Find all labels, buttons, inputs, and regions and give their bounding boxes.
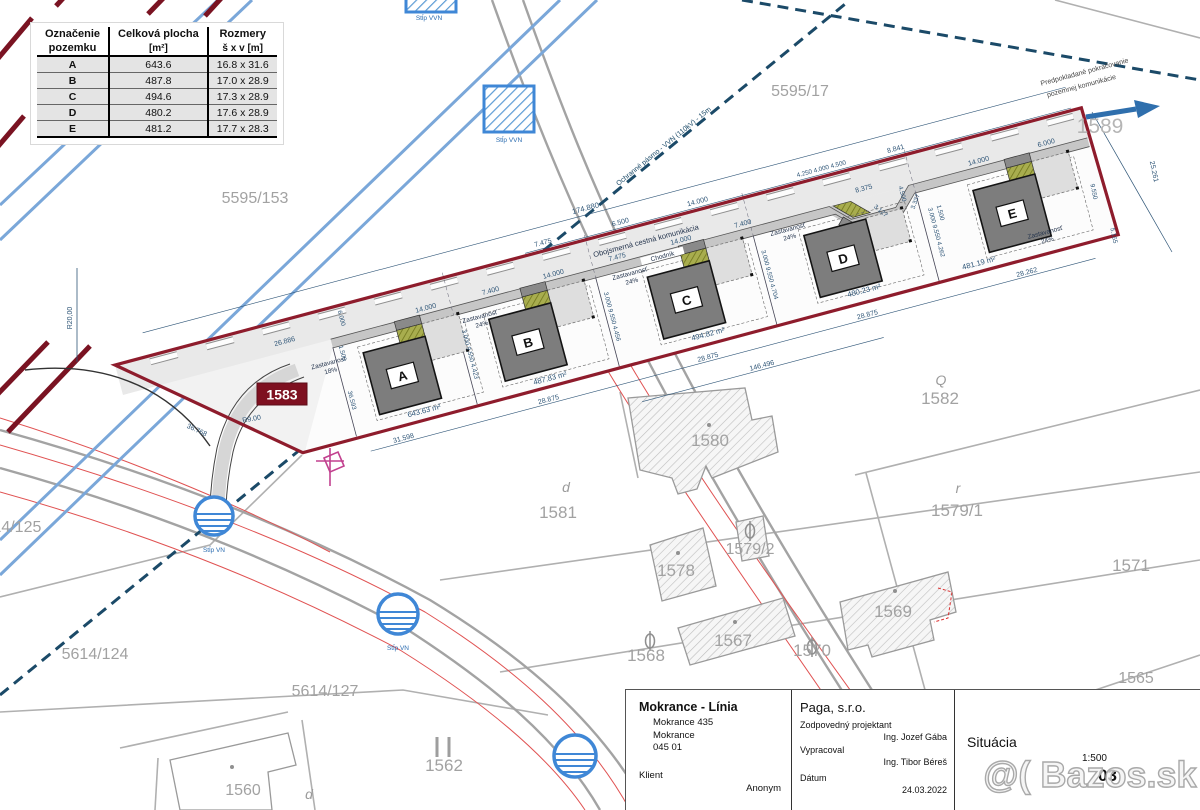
svg-text:d: d (305, 786, 314, 802)
row-d-id: D (37, 105, 109, 121)
table-header-size-unit: š x v [m] (208, 41, 277, 56)
pole-vn-icon (554, 735, 596, 777)
svg-text:d: d (562, 479, 571, 495)
pole-vn-label: Stĺp VN (387, 643, 409, 652)
svg-text:28.875: 28.875 (697, 352, 720, 364)
project-address-2: Mokrance (653, 730, 695, 741)
svg-text:5595/153: 5595/153 (222, 190, 289, 207)
row-d-area: 480.2 (109, 105, 208, 121)
parcel-1583-badge: 1583 (257, 383, 307, 405)
svg-text:Q: Q (936, 372, 947, 388)
watermark-text: @( Bazos.sk (983, 754, 1197, 795)
svg-text:8.841: 8.841 (886, 144, 905, 155)
table-row: B 487.8 17.0 x 28.9 (37, 73, 277, 89)
pole-vn-label: Stĺp VN (203, 545, 225, 554)
client-value: Anonym (746, 783, 781, 794)
svg-text:5614/127: 5614/127 (292, 683, 359, 700)
table-header-area: Celková plocha (109, 27, 208, 41)
row-b-area: 487.8 (109, 73, 208, 89)
project-zip: 045 01 (653, 742, 682, 753)
project-address-1: Mokrance 435 (653, 717, 713, 728)
svg-text:1579/1: 1579/1 (931, 501, 983, 520)
svg-text:5614/125: 5614/125 (0, 519, 41, 536)
svg-text:174.880: 174.880 (571, 200, 600, 216)
marker-ii-icon (437, 737, 449, 757)
svg-text:1581: 1581 (539, 503, 577, 522)
row-e-area: 481.2 (109, 121, 208, 138)
parcel-table: Označenie Celková plocha Rozmery pozemku… (30, 22, 284, 145)
title-block-project-column: Mokrance - Línia Mokrance 435 Mokrance 0… (626, 690, 791, 810)
table-header-area-unit: [m²] (109, 41, 208, 56)
row-b-size: 17.0 x 28.9 (208, 73, 277, 89)
svg-text:146.496: 146.496 (749, 359, 775, 372)
role-projektant-label: Zodpovedný projektant (800, 720, 892, 730)
svg-text:1562: 1562 (425, 756, 463, 775)
table-row: D 480.2 17.6 x 28.9 (37, 105, 277, 121)
svg-text:28.875: 28.875 (537, 394, 560, 406)
role-vypracoval-name: Ing. Tibor Béreš (883, 757, 947, 767)
pole-vn-symbols (195, 497, 596, 777)
pole-vn-icon (195, 497, 233, 535)
row-b-id: B (37, 73, 109, 89)
table-row: E 481.2 17.7 x 28.3 (37, 121, 277, 138)
company-name: Paga, s.r.o. (800, 700, 866, 715)
pylon-vvn-icon (406, 0, 456, 12)
svg-text:1571: 1571 (1112, 556, 1150, 575)
svg-text:1580: 1580 (691, 431, 729, 450)
svg-text:1578: 1578 (657, 561, 695, 580)
svg-text:5614/124: 5614/124 (62, 646, 129, 663)
svg-text:28.262: 28.262 (1016, 267, 1039, 279)
pole-vn-icon (378, 594, 418, 634)
pylon-vvn-label: Stĺp VVN (416, 13, 443, 22)
protection-zone-label: Ochranné pásmo - VVN (110kV) - 15m (615, 106, 712, 188)
svg-text:1560: 1560 (225, 782, 261, 799)
row-a-size: 16.8 x 31.6 (208, 56, 277, 73)
title-block-company-column: Paga, s.r.o. Zodpovedný projektant Ing. … (791, 690, 955, 810)
svg-text:5595/17: 5595/17 (771, 83, 829, 100)
row-c-size: 17.3 x 28.9 (208, 89, 277, 105)
role-vypracoval-label: Vypracoval (800, 745, 844, 755)
table-header-designation: Označenie (37, 27, 109, 41)
watermark-overlay: @( Bazos.sk (980, 733, 1200, 810)
table-header-size: Rozmery (208, 27, 277, 41)
site-plan-canvas: Ochranné pásmo - VVN (110kV) - 15m (0, 0, 1200, 810)
row-e-size: 17.7 x 28.3 (208, 121, 277, 138)
pylon-vvn-label: Stĺp VVN (496, 135, 523, 144)
row-d-size: 17.6 x 28.9 (208, 105, 277, 121)
svg-text:25.261: 25.261 (1148, 160, 1159, 183)
project-title: Mokrance - Línia (639, 700, 738, 714)
svg-text:R20,00: R20,00 (67, 307, 74, 330)
svg-text:36.768: 36.768 (185, 423, 207, 438)
date-label: Dátum (800, 773, 827, 783)
row-a-area: 643.6 (109, 56, 208, 73)
svg-text:1565: 1565 (1118, 670, 1154, 687)
svg-text:r: r (956, 480, 962, 496)
svg-text:1582: 1582 (921, 389, 959, 408)
row-c-area: 494.6 (109, 89, 208, 105)
table-row: A 643.6 16.8 x 31.6 (37, 56, 277, 73)
row-e-id: E (37, 121, 109, 138)
svg-text:1567: 1567 (714, 631, 752, 650)
survey-cross-icon (316, 448, 344, 486)
svg-text:31.598: 31.598 (392, 433, 415, 445)
table-header-designation2: pozemku (37, 41, 109, 56)
svg-text:1589: 1589 (1077, 115, 1124, 138)
row-c-id: C (37, 89, 109, 105)
svg-text:28.875: 28.875 (856, 309, 879, 321)
svg-text:1568: 1568 (627, 646, 665, 665)
continuation-arrow: Predpokladané pokračovanie pozemnej komu… (1040, 57, 1160, 118)
svg-text:1569: 1569 (874, 602, 912, 621)
existing-road-south (0, 430, 648, 810)
client-label: Klient (639, 770, 663, 781)
date-value: 24.03.2022 (902, 785, 947, 795)
table-row: C 494.6 17.3 x 28.9 (37, 89, 277, 105)
pylon-vvn-icon (484, 86, 534, 132)
role-projektant-name: Ing. Jozef Gába (883, 732, 947, 742)
svg-text:1570: 1570 (793, 641, 831, 660)
svg-text:1583: 1583 (266, 387, 297, 403)
row-a-id: A (37, 56, 109, 73)
svg-text:1579/2: 1579/2 (726, 541, 775, 558)
svg-text:6.500: 6.500 (611, 217, 630, 228)
